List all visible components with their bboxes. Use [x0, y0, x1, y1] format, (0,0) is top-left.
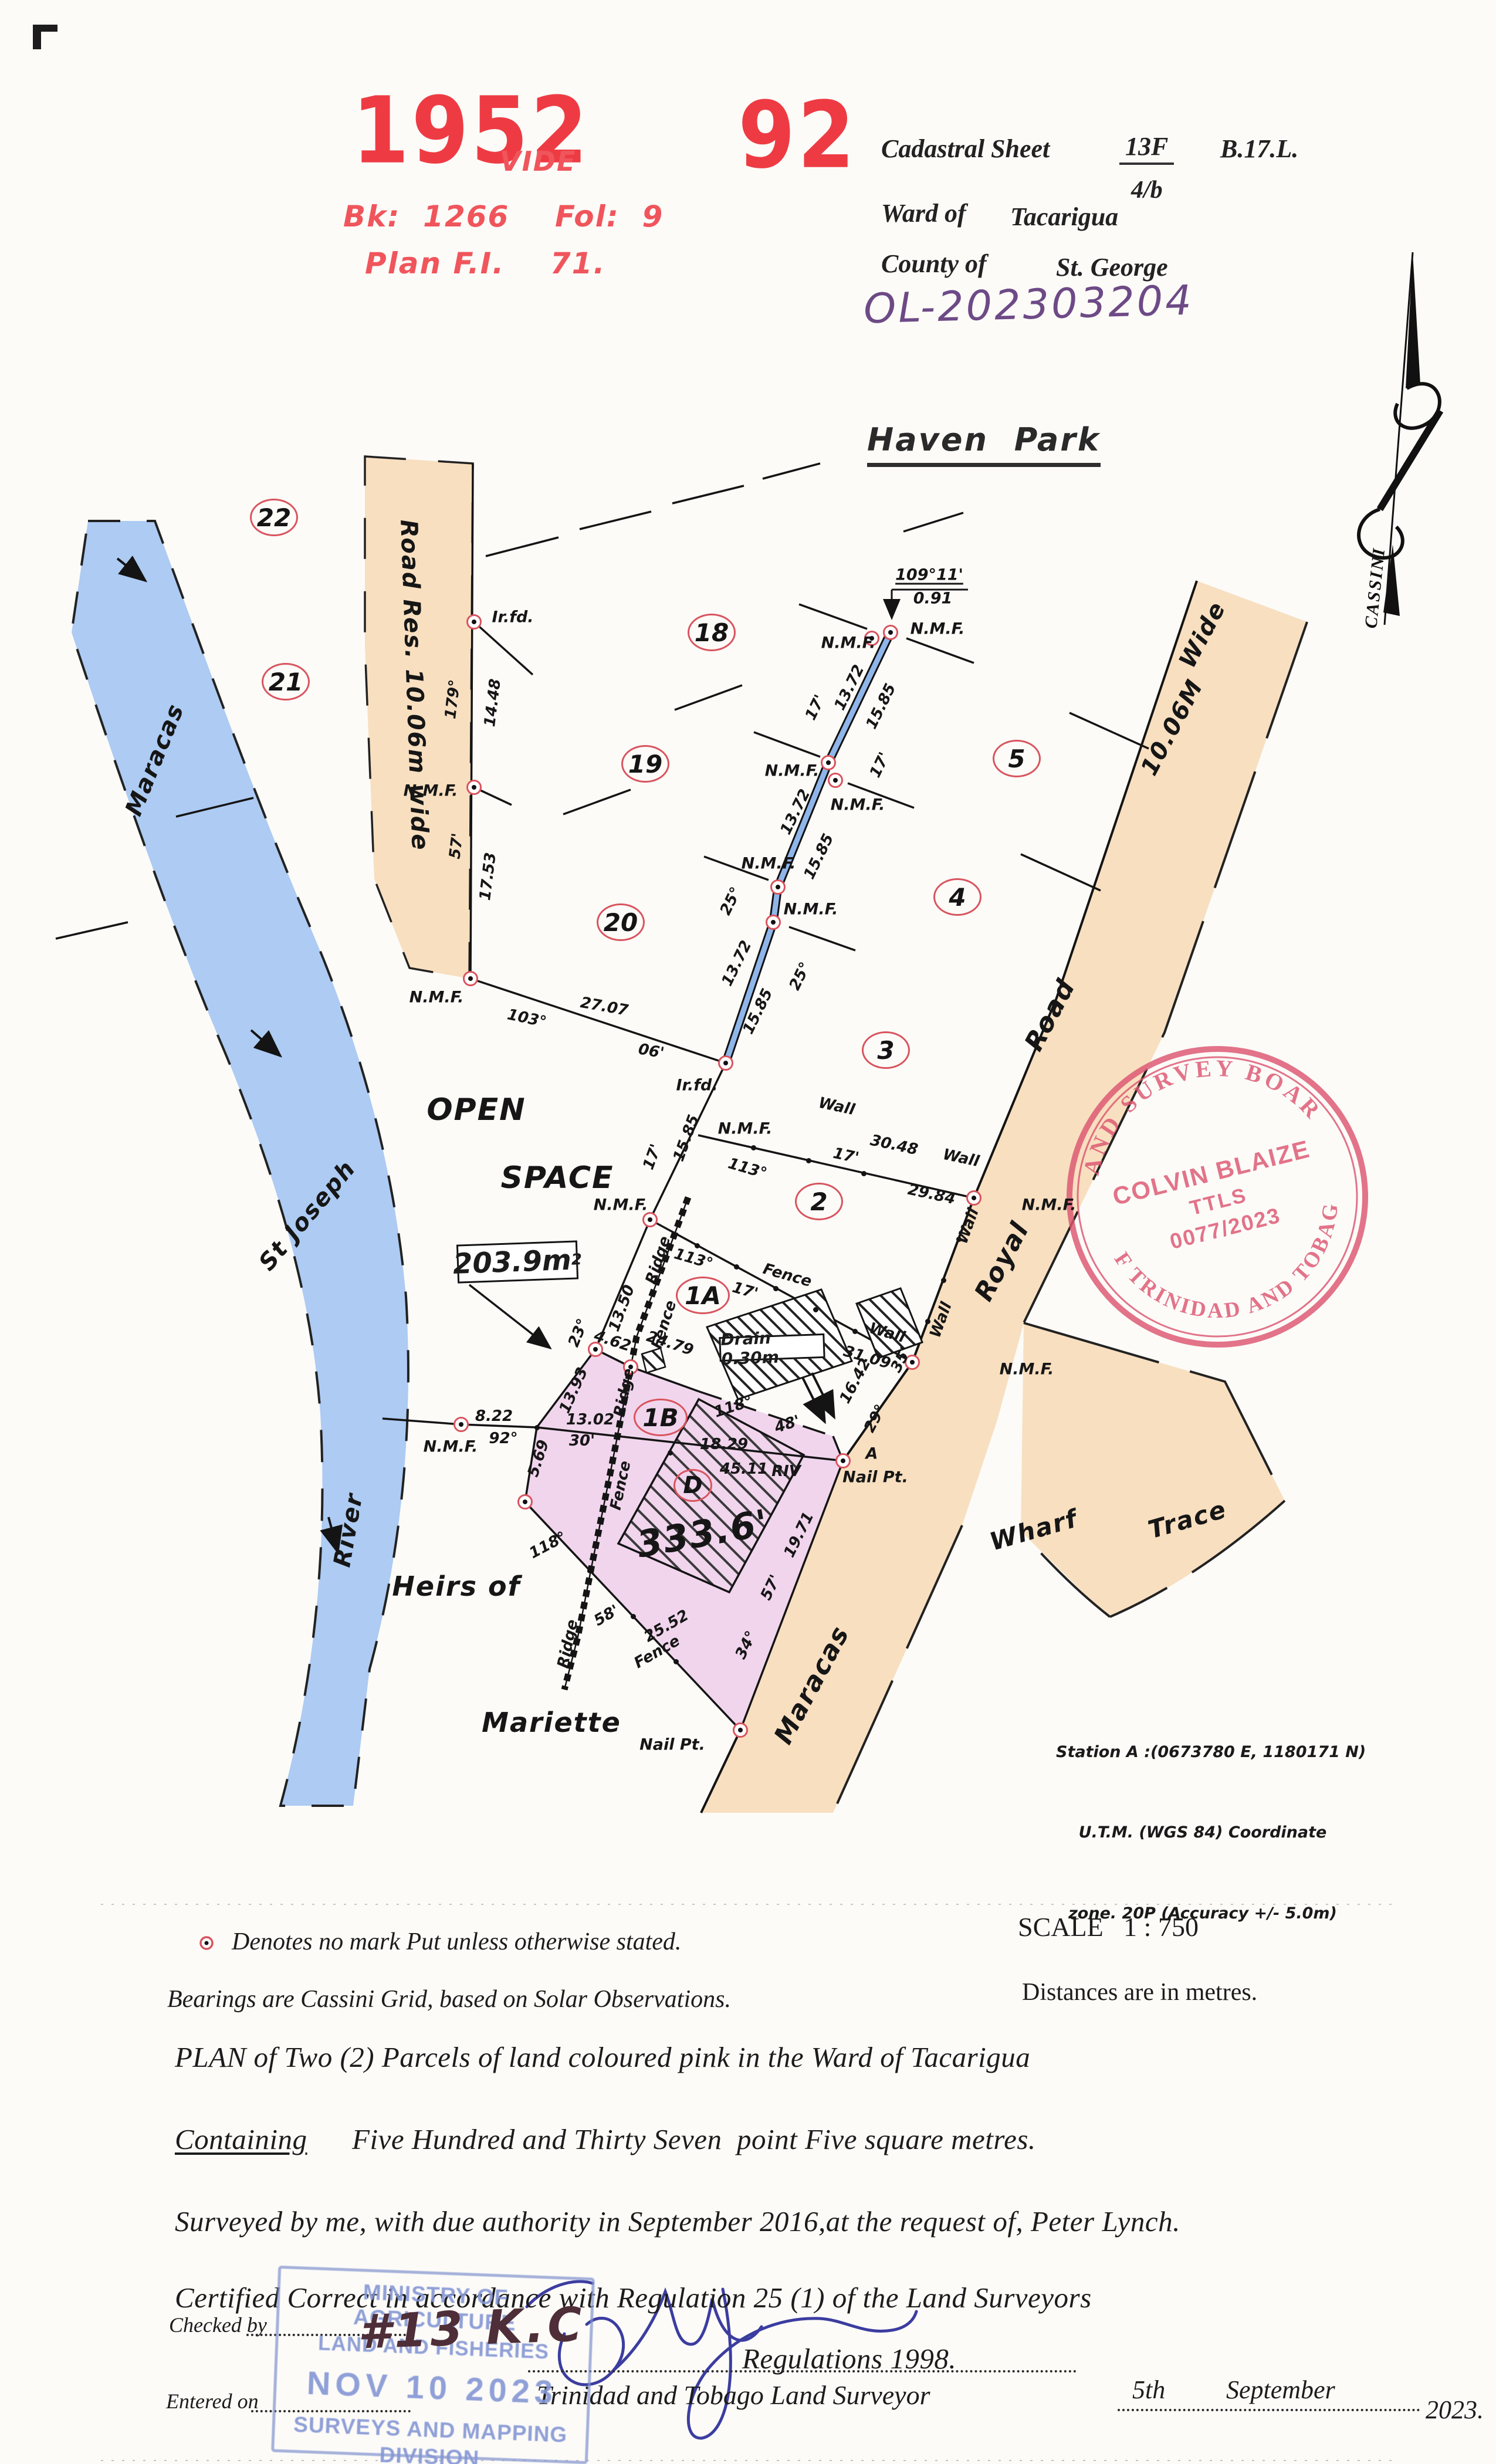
reference-number-handwritten: OL-202303204 — [863, 276, 1194, 333]
north-arrow-icon: CASSINI — [1359, 252, 1440, 629]
date-day: 5th — [1132, 2375, 1165, 2405]
map-label: Ir.fd. — [492, 608, 533, 627]
survey-point — [770, 879, 786, 895]
cadastral-sheet-value: 13F — [1119, 131, 1174, 165]
map-label: 45.11 — [720, 1460, 768, 1478]
fence-point — [852, 1329, 858, 1334]
header-number: 92 — [738, 82, 857, 189]
fence-point — [813, 1307, 818, 1312]
lot-22: 22 — [250, 499, 298, 536]
survey-point — [453, 1417, 469, 1432]
header-vide: VIDE — [500, 145, 576, 177]
lot-D: D — [673, 1469, 712, 1502]
map-label: N.M.F. — [718, 1120, 773, 1138]
survey-point — [828, 773, 843, 788]
station-line-1: Station A :(0673780 E, 1180171 N) — [1056, 1739, 1349, 1766]
fence-point — [773, 1286, 779, 1291]
map-label: Heirs of — [392, 1571, 520, 1602]
map-label: A — [866, 1445, 878, 1463]
cadastral-sheet-sub: 4/b — [1131, 176, 1163, 204]
map-label: N.M.F. — [821, 634, 876, 652]
checked-by-value: #13 K.C — [357, 2297, 586, 2359]
plan-desc-line-3: Surveyed by me, with due authority in Se… — [175, 2205, 1180, 2238]
fence-point — [668, 1450, 673, 1456]
map-label: Ir.fd. — [676, 1077, 717, 1095]
area-203-sup: 2 — [571, 1251, 582, 1269]
map-label: 57' — [446, 832, 466, 859]
plan-drawing: CASSINI LAND SURVEY BOARD OF TRINIDAD AN… — [0, 0, 1496, 2464]
survey-point — [883, 625, 898, 640]
fence-point — [751, 1145, 756, 1150]
lot-4: 4 — [933, 878, 981, 916]
fence-point — [534, 1425, 540, 1430]
signature-line — [528, 2370, 1077, 2372]
drain-label: Drain 0.30m — [720, 1326, 824, 1369]
scale-text: SCALE 1 : 750 — [1018, 1911, 1199, 1942]
date-year: 2023. — [1426, 2395, 1484, 2425]
small-structure — [642, 1348, 665, 1373]
scan-artifact — [33, 25, 57, 49]
map-label: N.M.F. — [784, 901, 838, 919]
map-label: Nail Pt. — [842, 1468, 908, 1487]
drain-flow-arrow — [803, 1377, 825, 1422]
fence-point — [673, 1659, 679, 1664]
lot-2: 2 — [795, 1183, 843, 1220]
fence-point — [806, 1158, 811, 1163]
map-label: Nail Pt. — [639, 1736, 705, 1754]
legend-note: Denotes no mark Put unless otherwise sta… — [232, 1928, 681, 1956]
entered-on-label: Entered on — [166, 2389, 259, 2414]
map-label: 8.22 — [475, 1407, 513, 1425]
area-pointer-arrow — [469, 1285, 550, 1348]
map-label: 30' — [569, 1432, 595, 1450]
cadastral-sheet-label: Cadastral Sheet — [881, 134, 1050, 164]
survey-point — [718, 1055, 733, 1071]
bearings-note: Bearings are Cassini Grid, based on Sola… — [167, 1985, 731, 2013]
drain-flow-arrow-2 — [812, 1373, 834, 1417]
survey-point — [466, 780, 482, 795]
survey-point — [835, 1453, 851, 1468]
fence-point — [734, 1264, 739, 1270]
map-label: 92° — [489, 1430, 517, 1447]
survey-plan-page: CASSINI LAND SURVEY BOARD OF TRINIDAD AN… — [0, 0, 1496, 2464]
distances-text: Distances are in metres. — [1022, 1978, 1257, 2006]
cadastral-block: B.17.L. — [1220, 134, 1298, 164]
surveyor-title: Trinidad and Tobago Land Surveyor — [537, 2380, 930, 2411]
map-label: N.M.F. — [1022, 1196, 1077, 1214]
legend-marker-dot — [205, 1941, 209, 1945]
map-label: N.M.F. — [911, 620, 965, 638]
map-label: 18.29 — [700, 1436, 748, 1453]
drain-label-box: Drain 0.30m — [719, 1333, 825, 1362]
fence-point — [631, 1614, 636, 1619]
county-label: County of — [881, 249, 987, 279]
date-line — [1118, 2409, 1420, 2411]
map-label: N.M.F. — [409, 989, 464, 1007]
plan-desc-line-1: PLAN of Two (2) Parcels of land coloured… — [175, 2040, 1030, 2074]
ministry-stamp: MINISTRY OF AGRICULTURE LAND AND FISHERI… — [271, 2266, 595, 2464]
lot-1A: 1A — [676, 1277, 730, 1314]
lot-21: 21 — [262, 663, 310, 700]
drain-outline — [726, 632, 891, 1063]
map-label: N.M.F. — [765, 762, 820, 780]
lot-1B: 1B — [634, 1399, 688, 1436]
ward-label: Ward of — [881, 198, 966, 228]
map-label: 13.02 — [566, 1411, 614, 1429]
survey-point — [766, 915, 781, 930]
station-line-2: U.T.M. (WGS 84) Coordinate — [1056, 1819, 1349, 1846]
survey-point — [733, 1722, 748, 1738]
header-book-folio: Bk: 1266 Fol: 9 — [343, 199, 664, 233]
fence-point — [587, 1568, 593, 1573]
header-plan-ref: Plan F.I. 71. — [365, 246, 605, 280]
fence-point — [941, 1278, 946, 1283]
map-label: RIV — [771, 1463, 801, 1480]
survey-point — [821, 755, 836, 770]
fence-point — [695, 1243, 700, 1248]
map-label: N.M.F. — [424, 1438, 478, 1456]
map-label: Mariette — [482, 1707, 621, 1738]
map-label: OPEN — [427, 1092, 526, 1128]
area-203-box: 203.9m2 — [456, 1240, 578, 1283]
lot-20: 20 — [597, 903, 645, 941]
survey-point — [466, 614, 482, 629]
map-label: N.M.F. — [1000, 1360, 1054, 1379]
map-label: N.M.F. — [742, 855, 796, 873]
map-label: N.M.F. — [831, 796, 885, 814]
survey-point — [517, 1494, 533, 1509]
ward-value: Tacarigua — [1010, 202, 1118, 232]
lot-19: 19 — [621, 745, 669, 783]
lot-18: 18 — [688, 614, 736, 651]
river-band — [72, 521, 408, 1806]
map-label: N.M.F. — [404, 782, 458, 800]
survey-point — [463, 971, 478, 986]
map-label: 0.91 — [913, 590, 953, 608]
lot-5: 5 — [993, 740, 1041, 777]
fence-point — [925, 1319, 930, 1324]
survey-point — [642, 1212, 658, 1227]
estate-title: Haven Park — [867, 421, 1101, 467]
map-label: 109°11' — [895, 566, 963, 584]
containing-value: Five Hundred and Thirty Seven point Five… — [307, 2123, 1036, 2155]
survey-point — [966, 1190, 981, 1206]
fence-point — [861, 1171, 867, 1176]
plan-desc-line-2: Containing Five Hundred and Thirty Seven… — [175, 2123, 1036, 2156]
map-label: SPACE — [500, 1160, 614, 1196]
ministry-date: NOV 10 2023 — [276, 2363, 588, 2413]
map-label: N.M.F. — [594, 1196, 648, 1214]
date-month: September — [1226, 2375, 1335, 2405]
lot-3: 3 — [862, 1031, 910, 1069]
containing-label: Containing — [175, 2123, 307, 2155]
area-203-value: 203.9m — [452, 1244, 572, 1281]
